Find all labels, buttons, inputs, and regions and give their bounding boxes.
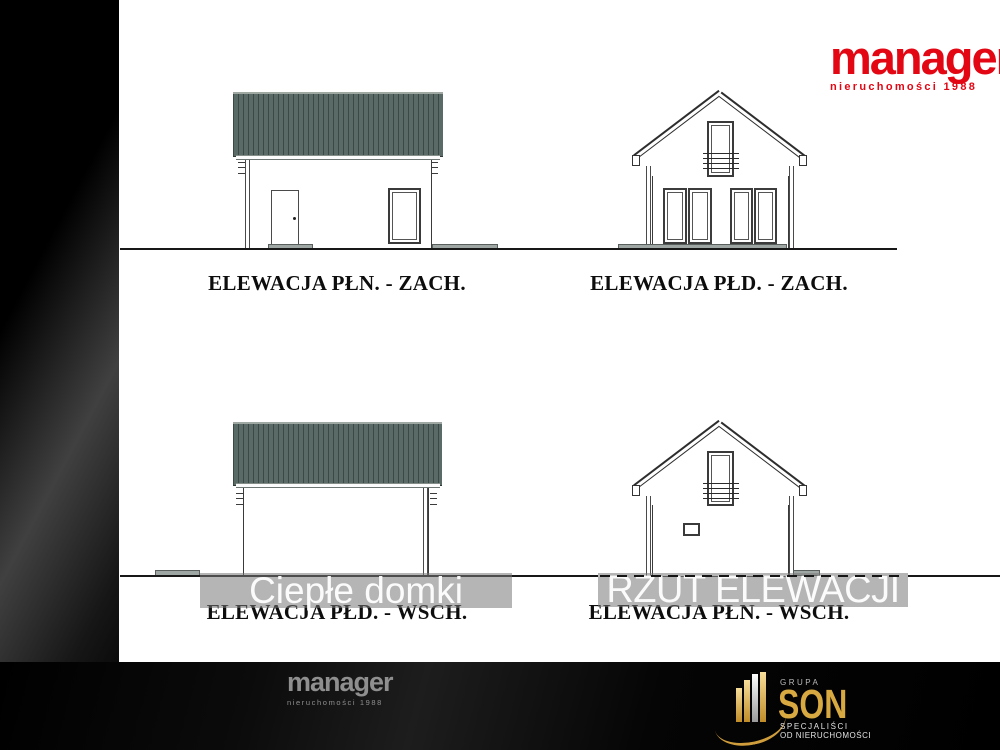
- elevation-label-sw: ELEWACJA PŁD. - ZACH.: [569, 271, 869, 296]
- building-bar-icon: [752, 674, 758, 722]
- balcony-railing: [703, 163, 739, 164]
- group-subtitle-2: OD NIERUCHOMOŚCI: [780, 731, 871, 740]
- gutter-box: [632, 485, 640, 496]
- brand-logo-wordmark: manager: [830, 38, 1000, 78]
- door-handle: [293, 217, 296, 220]
- balcony-railing: [703, 168, 739, 169]
- group-son-logo: GRUPA SON SPECJALIŚCI OD NIERUCHOMOŚCI: [700, 662, 1000, 750]
- glass-door: [388, 188, 421, 244]
- gutter-bracket: [236, 498, 243, 499]
- downspout: [789, 496, 794, 576]
- ground-line-bottom: [908, 575, 1000, 577]
- downspout: [789, 166, 794, 248]
- gutter-bracket: [238, 173, 245, 174]
- balcony-railing: [703, 153, 739, 154]
- door-panel-glass: [758, 192, 773, 240]
- gutter-box: [632, 155, 640, 166]
- watermark-box-right: RZUT ELEWACJI: [598, 573, 908, 607]
- elevation-label-nw: ELEWACJA PŁN. - ZACH.: [187, 271, 487, 296]
- roof: [233, 422, 442, 486]
- door-panel-glass: [692, 192, 708, 240]
- gutter-bracket: [430, 493, 437, 494]
- downspout: [646, 496, 651, 576]
- balcony-railing: [703, 498, 739, 499]
- downspout: [646, 166, 651, 248]
- door-panel: [754, 188, 777, 244]
- french-door-unit: [663, 188, 712, 244]
- balcony-railing: [703, 493, 739, 494]
- gutter-bracket: [238, 167, 245, 168]
- door-panel: [730, 188, 753, 244]
- presentation-slide: ELEWACJA PŁN. - ZACH. ELEWACJA PŁD. - ZA…: [0, 0, 1000, 750]
- door-panel-glass: [667, 192, 683, 240]
- ground-line-dashed: [600, 575, 906, 577]
- watermark-box-left: Ciepłe domki: [200, 573, 512, 608]
- small-window: [683, 523, 700, 536]
- window-frame-inner: [711, 125, 730, 173]
- gutter-bracket: [431, 162, 438, 163]
- gutter-bracket: [430, 498, 437, 499]
- footer-brand-wordmark: manager: [287, 670, 393, 694]
- building-bar-icon: [744, 680, 750, 722]
- downspout: [423, 488, 428, 575]
- building-bar-icon: [760, 672, 766, 722]
- wall: [243, 488, 429, 576]
- building-bar-icon: [736, 688, 742, 722]
- left-shadow-band: [0, 0, 119, 750]
- gutter-box: [799, 155, 807, 166]
- gutter-box: [799, 485, 807, 496]
- gutter-bracket: [236, 504, 243, 505]
- watermark-text-left: Ciepłe domki: [249, 570, 463, 612]
- gutter-bracket: [430, 504, 437, 505]
- door-frame-inner: [392, 192, 417, 240]
- ground-line-top: [120, 248, 897, 250]
- gutter-bracket: [236, 493, 243, 494]
- french-door-unit: [730, 188, 777, 244]
- door-panel: [688, 188, 712, 244]
- gutter-bracket: [238, 162, 245, 163]
- window-frame-inner: [711, 455, 730, 502]
- group-subtitle-1: SPECJALIŚCI: [780, 722, 849, 731]
- brand-logo-top: manager nieruchomości 1988: [830, 38, 1000, 93]
- gutter-bracket: [431, 173, 438, 174]
- door-panel-glass: [734, 192, 749, 240]
- brand-logo-tagline: nieruchomości 1988: [830, 81, 1000, 93]
- roof: [233, 92, 443, 157]
- entry-door: [271, 190, 299, 246]
- downspout: [245, 160, 250, 248]
- footer-bar: manager nieruchomości 1988 GRUPA SON SPE…: [0, 662, 1000, 750]
- gable-wall: [652, 505, 789, 577]
- balcony-railing: [703, 158, 739, 159]
- balcony-railing: [703, 483, 739, 484]
- balcony-railing: [703, 488, 739, 489]
- footer-brand-tagline: nieruchomości 1988: [287, 698, 393, 707]
- door-panel: [663, 188, 687, 244]
- footer-brand-logo: manager nieruchomości 1988: [287, 670, 393, 707]
- gutter-bracket: [431, 167, 438, 168]
- group-wordmark: SON: [778, 686, 847, 722]
